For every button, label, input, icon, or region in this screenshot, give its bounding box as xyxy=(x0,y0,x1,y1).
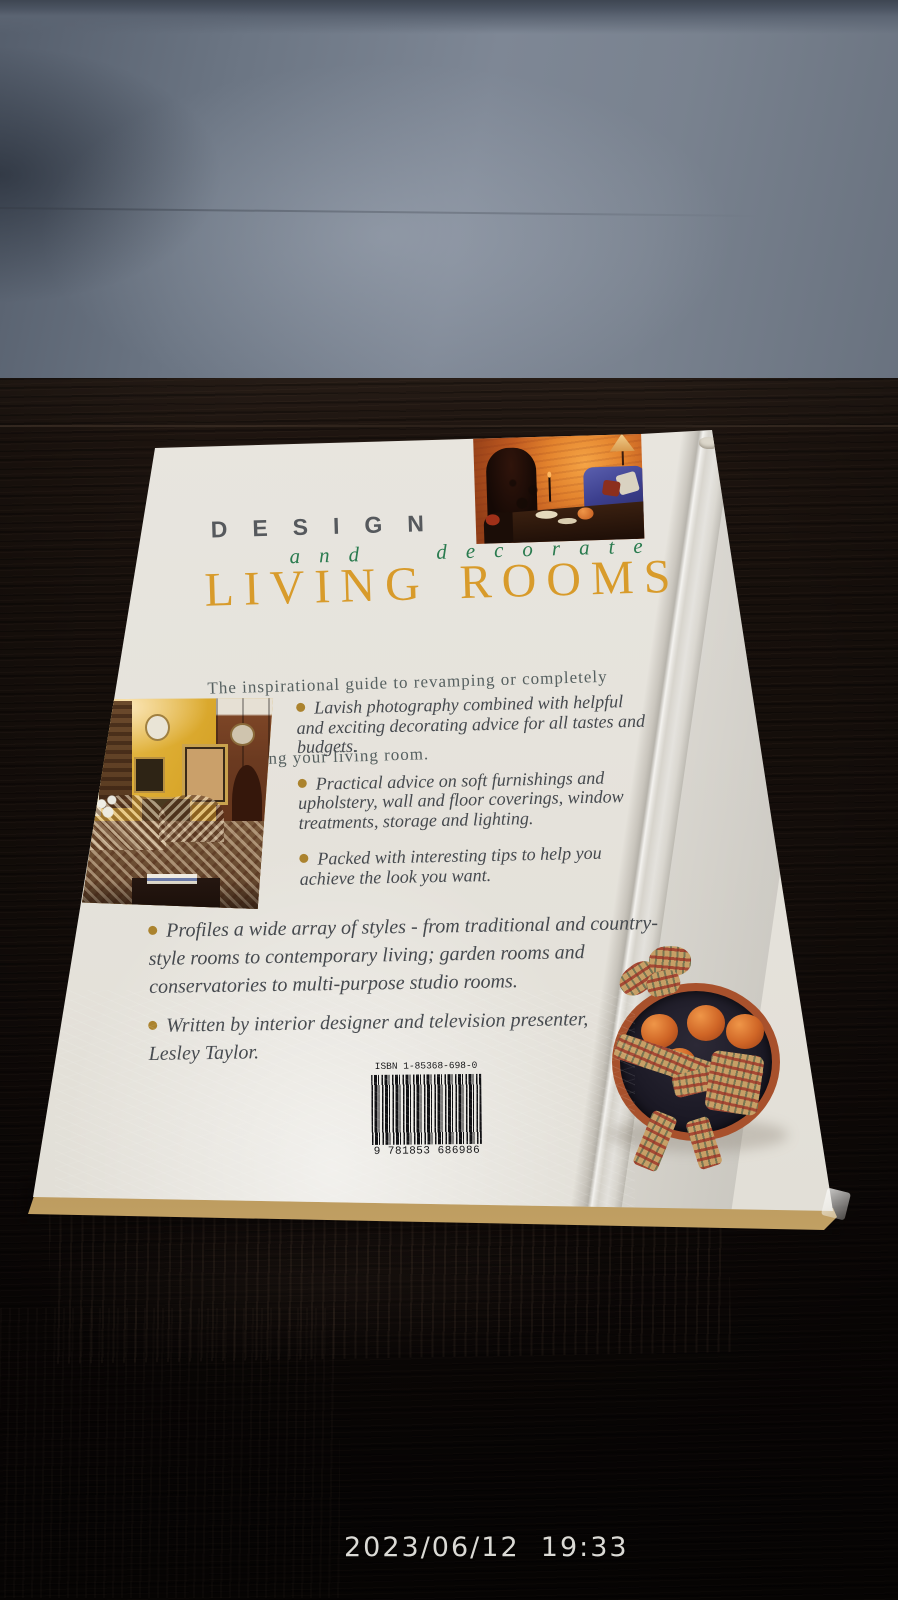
oval-mirror xyxy=(230,723,255,746)
bullet-dot-icon xyxy=(148,926,157,935)
background-wall xyxy=(0,0,898,380)
small-picture-frame xyxy=(134,757,165,793)
orange-fruit xyxy=(687,1005,725,1041)
main-title: LIVING ROOMS xyxy=(204,549,681,618)
series-title: DESIGN xyxy=(210,509,449,543)
feature-bullet-list: Lavish photography combined with helpful… xyxy=(296,691,680,906)
cover-masthead: DESIGN and decorate LIVING ROOMS The ins… xyxy=(195,490,720,695)
bullet-dot-icon xyxy=(299,854,308,863)
shrink-wrap-scratches xyxy=(55,990,635,1230)
photo-bottom-shadow xyxy=(82,880,274,910)
sofa-back xyxy=(159,795,224,842)
bullet-point: Lavish photography combined with helpful… xyxy=(296,691,677,757)
bullet-dot-icon xyxy=(296,703,305,712)
camera-timestamp: 2023/06/12 19:33 xyxy=(344,1532,629,1563)
candle-flame xyxy=(547,471,551,477)
photo-of-book-on-table: DESIGN and decorate LIVING ROOMS The ins… xyxy=(0,0,898,1600)
tartan-parcel xyxy=(704,1050,765,1116)
bullet-point: Practical advice on soft furnishings and… xyxy=(298,767,679,833)
lamp-stem xyxy=(621,451,623,465)
bullet-dot-icon xyxy=(298,778,307,787)
orange-fruit xyxy=(726,1014,764,1050)
country-style-living-room-photo xyxy=(82,697,274,910)
bullet-point: Packed with interesting tips to help you… xyxy=(299,842,680,889)
